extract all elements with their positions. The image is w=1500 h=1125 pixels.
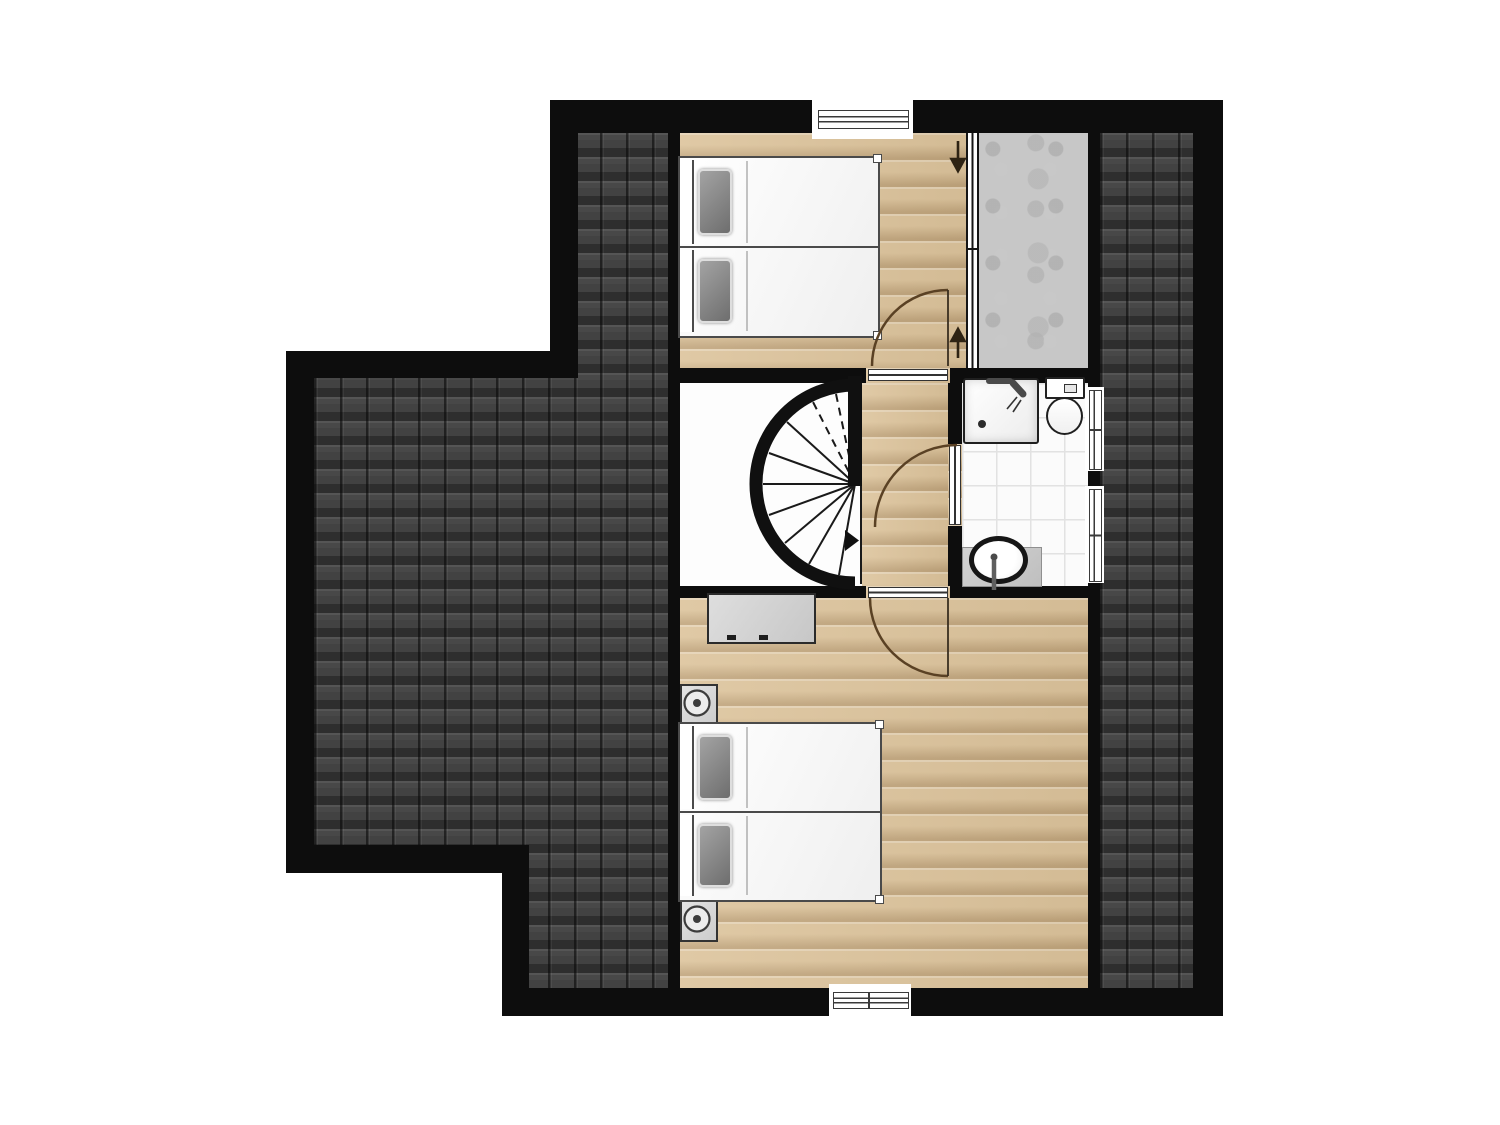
duvet-fold-line [746,251,748,331]
double-bed-half-2 [680,811,880,898]
bathroom-window-upper-frame [1089,390,1102,470]
floor-plan-page [0,0,1500,1125]
duvet-fold-line [746,816,748,895]
top-window-frame [818,110,909,129]
single-beds-top-bedroom [678,156,880,338]
nightstand-bottom [680,900,718,942]
bathroom-window-lower-frame [1089,489,1102,582]
nightstand-top [680,684,718,726]
bed-headboard [680,160,694,244]
bedroom-top-door [868,369,948,381]
stairwell-floor [680,383,862,586]
toilet-bowl [1046,397,1083,435]
bottom-window-frame [833,992,909,1009]
double-bed [678,722,882,902]
single-bed-1 [680,158,878,246]
bed-pillow [698,735,732,800]
bedroom-bottom-door [868,587,948,598]
bed-pillow [698,824,732,887]
bed-headboard [680,726,694,809]
storage-loft-floor [979,133,1088,368]
single-bed-2 [680,246,878,334]
duvet-fold-line [746,727,748,808]
bed-headboard [680,250,694,332]
bed-pillow [698,169,732,235]
washbasin [969,536,1028,584]
bed-pillow [698,259,732,323]
bed-headboard [680,815,694,896]
bathroom-door [949,445,961,525]
landing-floor [862,383,948,586]
double-bed-half-1 [680,724,880,811]
toilet-flush-button [1064,384,1077,393]
sideboard [707,593,816,644]
partition-joint-tick [966,248,979,250]
duvet-fold-line [746,161,748,243]
shower-tray [963,378,1039,444]
roof-right-area [1100,133,1193,988]
storage-glass-partition [966,133,979,368]
